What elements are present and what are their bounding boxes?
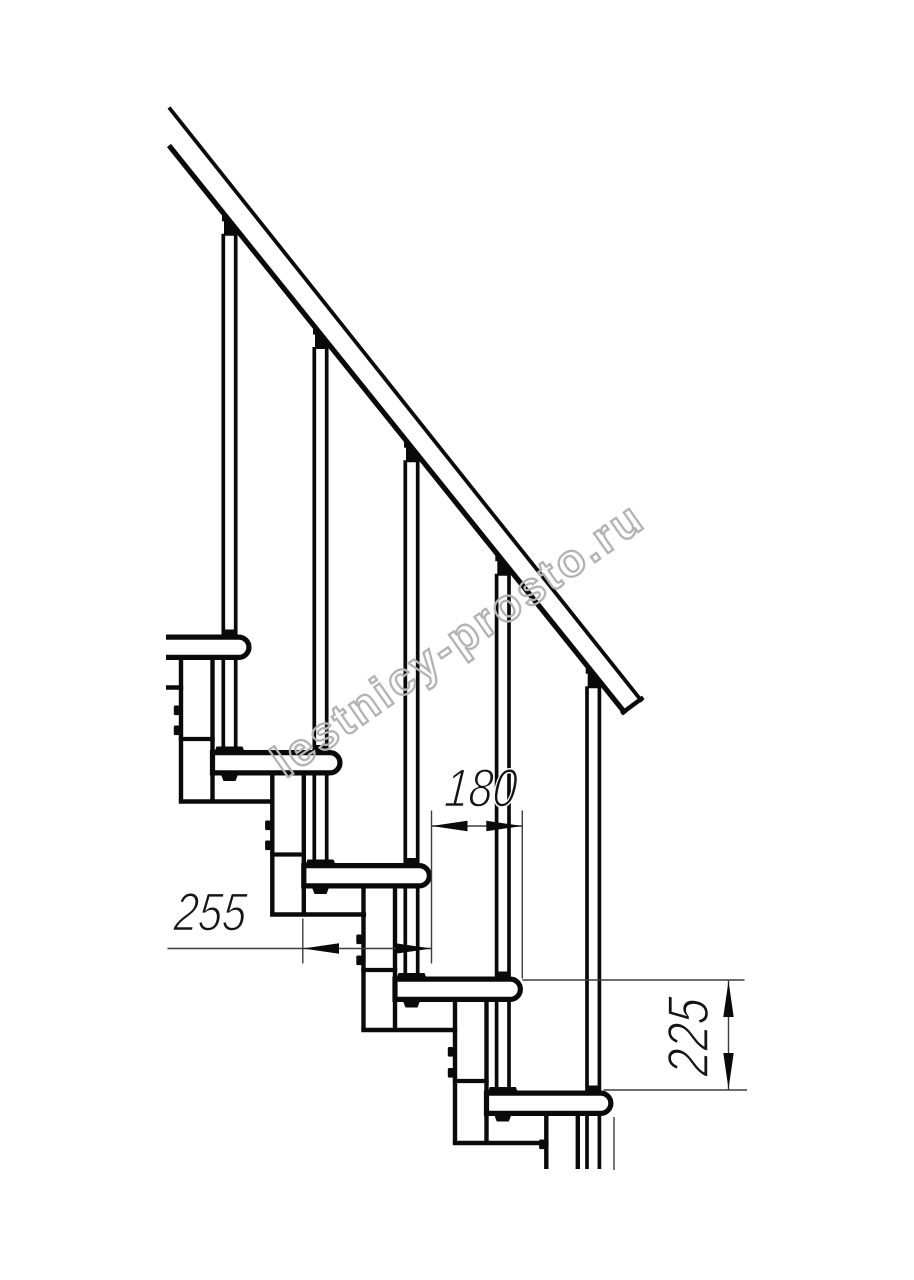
svg-text:255: 255 [171, 883, 250, 943]
svg-text:lestnicy-prosto.ru: lestnicy-prosto.ru [261, 491, 653, 787]
svg-text:225: 225 [656, 994, 721, 1078]
svg-text:180: 180 [442, 759, 519, 819]
